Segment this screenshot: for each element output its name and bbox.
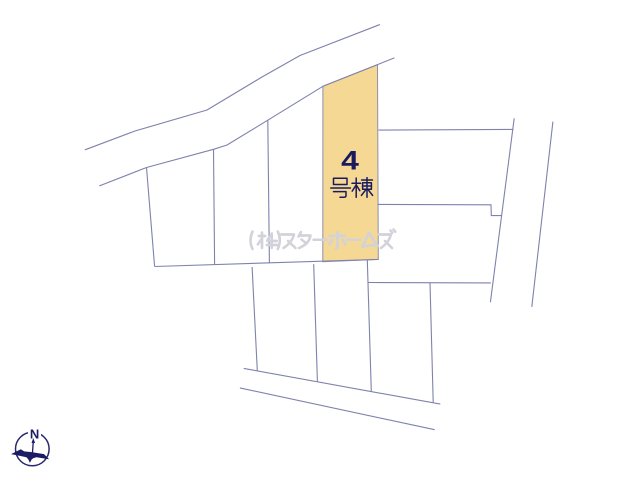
svg-text:N: N bbox=[30, 426, 39, 441]
svg-text:4: 4 bbox=[341, 146, 359, 176]
